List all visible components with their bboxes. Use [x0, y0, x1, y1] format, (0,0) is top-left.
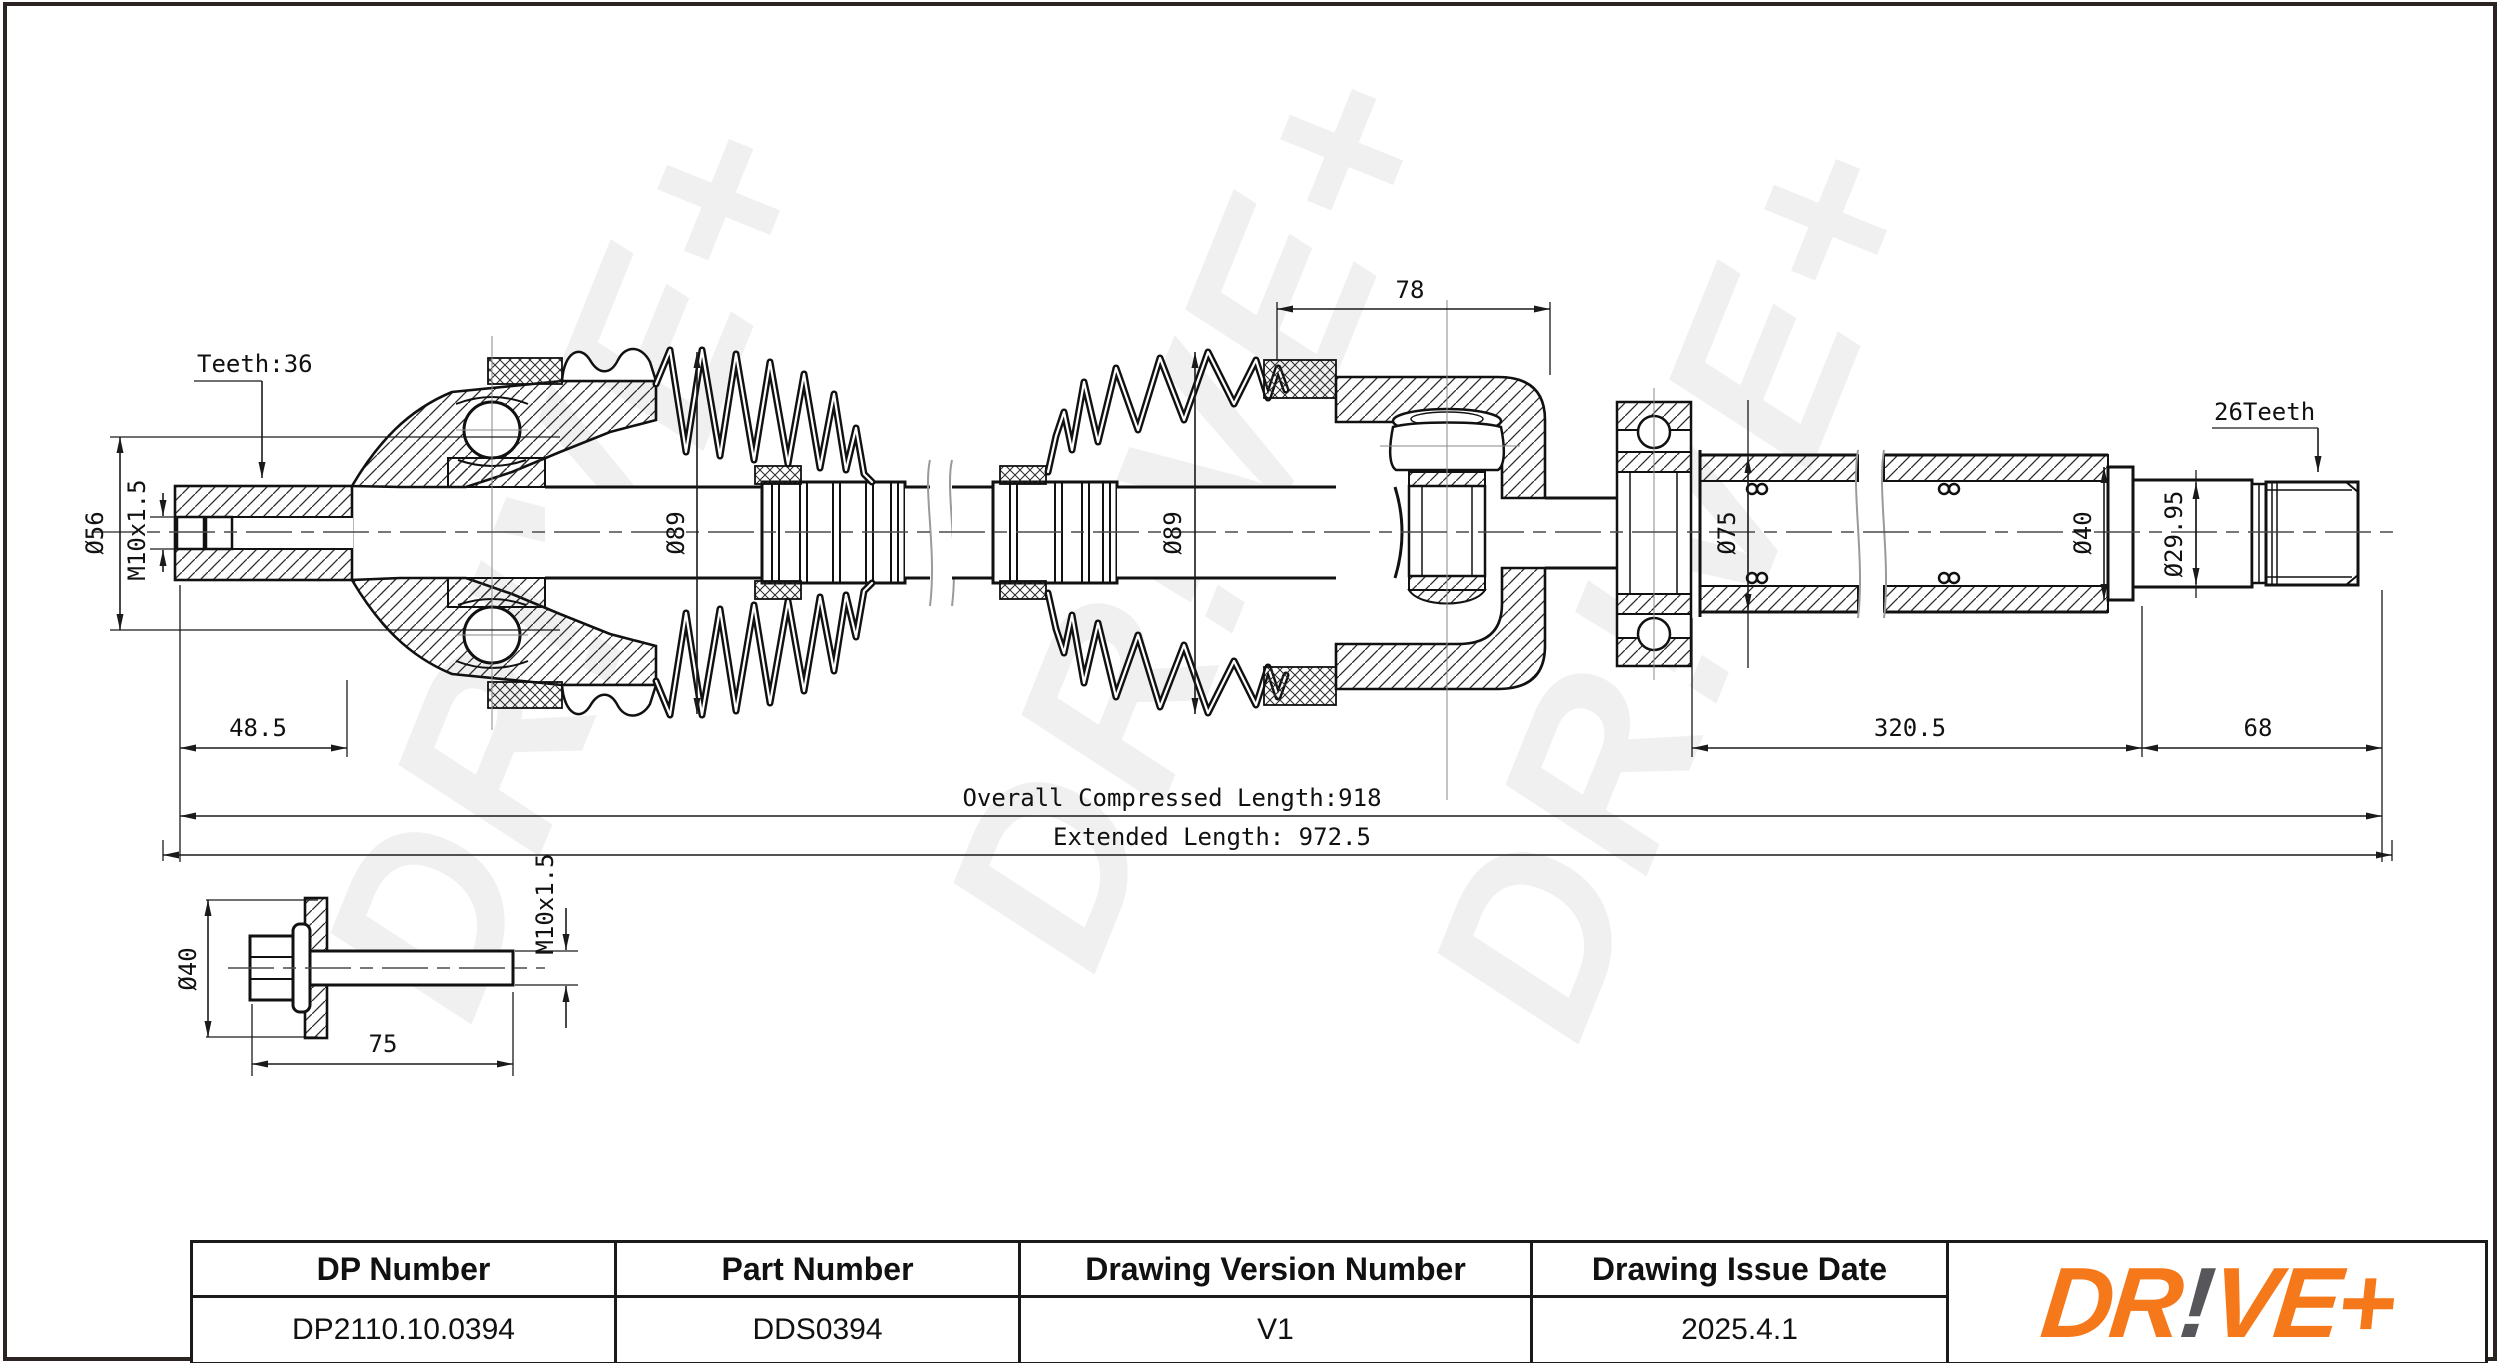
- left-stub-shaft: [175, 486, 353, 580]
- dim-bolt-m10: M10x1.5: [531, 853, 559, 954]
- dim-bolt-dia40: Ø40: [174, 947, 202, 990]
- axle-technical-drawing: DR!VE+ DR!VE+ DR!VE+: [0, 0, 2500, 1363]
- title-block-value-part-number: DDS0394: [616, 1297, 1020, 1363]
- dim-68: 68: [2244, 714, 2273, 742]
- logo-segment: VE+: [2206, 1247, 2398, 1359]
- dim-dia40: Ø40: [2069, 511, 2097, 554]
- title-block-header-drawing-version: Drawing Version Number: [1020, 1242, 1532, 1297]
- boot-clamp-band: [488, 358, 562, 384]
- title-block-header-dp-number: DP Number: [192, 1242, 616, 1297]
- title-block-header-issue-date: Drawing Issue Date: [1532, 1242, 1948, 1297]
- dim-48-5: 48.5: [229, 714, 287, 742]
- drive-plus-logo: DR!VE+: [1948, 1253, 2487, 1353]
- dim-dia29-95: Ø29.95: [2160, 491, 2188, 578]
- dim-dia56: Ø56: [81, 511, 109, 554]
- dim-bolt-75: 75: [369, 1030, 398, 1058]
- logo-segment: DR: [2036, 1247, 2184, 1359]
- title-block-value-dp-number: DP2110.10.0394: [192, 1297, 616, 1363]
- dim-dia75: Ø75: [1713, 511, 1741, 554]
- label-teeth-36: Teeth:36: [197, 350, 313, 378]
- brand-logo-cell: DR!VE+: [1948, 1242, 2487, 1363]
- label-26-teeth: 26Teeth: [2214, 398, 2315, 426]
- dim-extended-length: Extended Length: 972.5: [1053, 823, 1371, 851]
- boot-clamp-band: [1264, 667, 1336, 705]
- right-stub-shaft: [2108, 467, 2358, 600]
- title-block-value-issue-date: 2025.4.1: [1532, 1297, 1948, 1363]
- dim-dia89-left: Ø89: [662, 511, 690, 554]
- boot-clamp-band: [1264, 360, 1336, 398]
- dim-overall-compressed-length: Overall Compressed Length:918: [962, 784, 1381, 812]
- dim-dia89-right: Ø89: [1159, 511, 1187, 554]
- title-block: DP Number Part Number Drawing Version Nu…: [190, 1240, 2488, 1363]
- dim-78: 78: [1396, 276, 1425, 304]
- title-block-value-drawing-version: V1: [1020, 1297, 1532, 1363]
- title-block-header-part-number: Part Number: [616, 1242, 1020, 1297]
- boot-clamp-band: [488, 682, 562, 708]
- drawing-sheet: DR!VE+ DR!VE+ DR!VE+: [0, 0, 2500, 1363]
- dim-320-5: 320.5: [1874, 714, 1946, 742]
- dim-m10-left: M10x1.5: [123, 479, 151, 580]
